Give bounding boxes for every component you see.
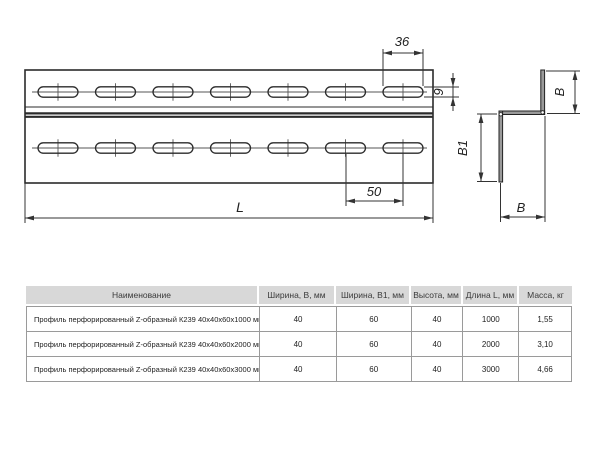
cell-width-b1: 60 [336,332,411,356]
section-bottom-flange [499,111,503,182]
table-row: Профиль перфорированный Z-образный К239 … [27,331,571,356]
dim-label-B-top: B [552,87,567,96]
cell-length: 2000 [462,332,518,356]
dim-label-B-bottom: B [517,200,526,215]
cell-height: 40 [411,357,463,381]
cell-name: Профиль перфорированный Z-образный К239 … [27,332,259,356]
dim-web [477,114,497,182]
cell-mass: 1,55 [518,307,571,331]
table-row: Профиль перфорированный Z-образный К239 … [27,307,571,331]
cell-length: 1000 [462,307,518,331]
cell-width-b1: 60 [336,357,411,381]
cell-width-b1: 60 [336,307,411,331]
cell-width-b: 40 [259,307,336,331]
header-height: Высота, мм [411,286,463,304]
section-middle-web [499,111,545,115]
table-row: Профиль перфорированный Z-образный К239 … [27,356,571,381]
cell-width-b: 40 [259,332,336,356]
cell-name: Профиль перфорированный Z-образный К239 … [27,307,259,331]
dim-label-B1: B1 [455,140,470,156]
page: 36 9 50 L [0,0,600,450]
spec-table: Наименование Ширина, В, мм Ширина, В1, м… [26,286,572,382]
cell-mass: 3,10 [518,332,571,356]
z-section [499,70,545,182]
cell-length: 3000 [462,357,518,381]
cell-name: Профиль перфорированный Z-образный К239 … [27,357,259,381]
technical-drawing: 36 9 50 L [0,0,600,280]
table-header-row: Наименование Ширина, В, мм Ширина, В1, м… [26,286,572,304]
bend-radius-dot [499,113,502,116]
header-mass: Масса, кг [519,286,572,304]
dim-label-50: 50 [367,184,382,199]
dim-label-36: 36 [395,34,410,49]
header-name: Наименование [26,286,259,304]
header-width-b: Ширина, В, мм [259,286,336,304]
dim-label-9: 9 [431,88,446,95]
cell-height: 40 [411,307,463,331]
slot-centerlines [32,83,427,157]
cell-height: 40 [411,332,463,356]
table-body: Профиль перфорированный Z-образный К239 … [26,306,572,382]
bend-radius-dot [541,111,544,114]
cell-mass: 4,66 [518,357,571,381]
header-width-b1: Ширина, В1, мм [336,286,411,304]
header-length: Длина L, мм [463,286,519,304]
section-top-flange [541,70,545,115]
cell-width-b: 40 [259,357,336,381]
dim-label-L: L [236,199,244,215]
